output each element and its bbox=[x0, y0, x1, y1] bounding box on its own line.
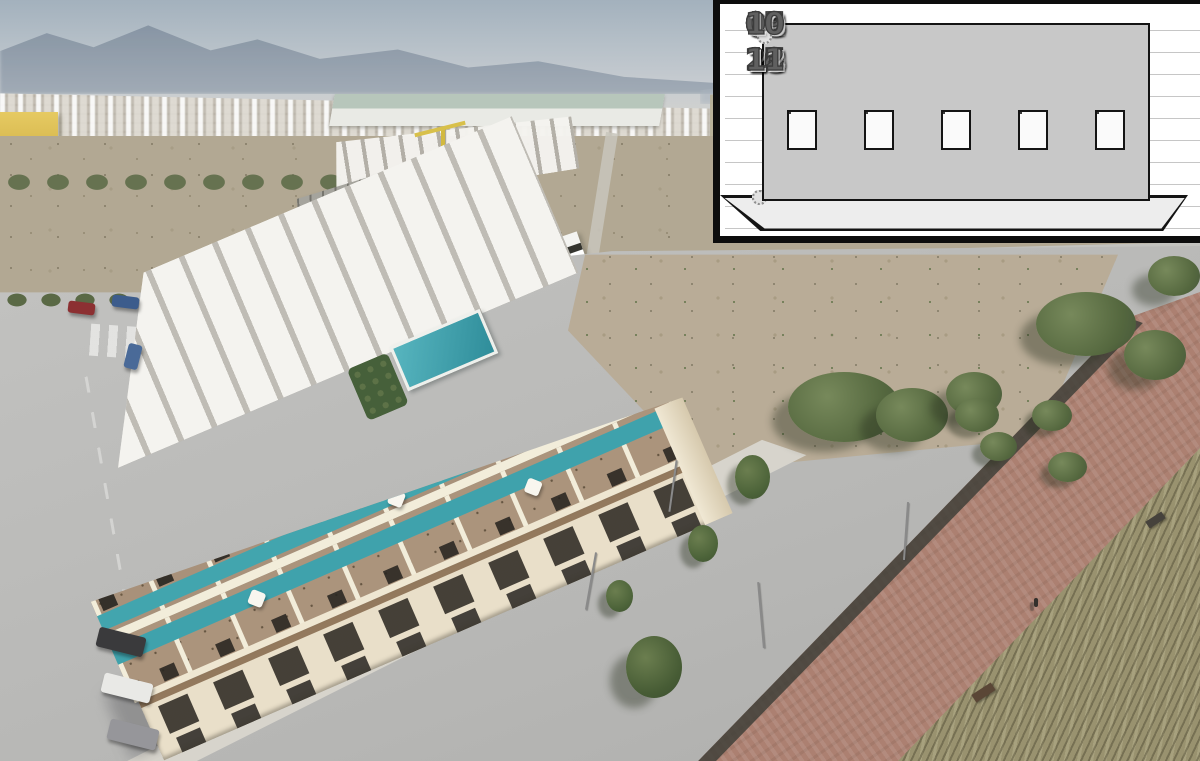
plan-building: 2001190218031704160515061407130812091110 bbox=[762, 23, 1150, 201]
stairwell-icon bbox=[941, 110, 971, 150]
warehouse-green-roof bbox=[329, 94, 665, 126]
tree-line bbox=[0, 158, 345, 202]
tree bbox=[1032, 400, 1072, 431]
tree bbox=[606, 580, 633, 612]
stairwell-icon bbox=[864, 110, 894, 150]
aerial-render-scene: 2001190218031704160515061407130812091110 bbox=[0, 0, 1200, 761]
plan-band-cells bbox=[759, 197, 1147, 229]
tree bbox=[688, 525, 718, 562]
tree bbox=[876, 388, 948, 442]
stairwell-icon bbox=[1018, 110, 1048, 150]
pedestrian bbox=[1034, 598, 1038, 607]
site-plan-overlay: 2001190218031704160515061407130812091110 bbox=[713, 0, 1200, 243]
tree bbox=[1124, 330, 1186, 380]
stairwell-icon bbox=[1095, 110, 1125, 150]
unit-number: 11 bbox=[745, 46, 783, 76]
tree bbox=[1048, 452, 1087, 482]
unit-number: 10 bbox=[745, 10, 783, 40]
tree bbox=[1148, 256, 1200, 296]
tree bbox=[955, 398, 999, 432]
tree bbox=[735, 455, 770, 499]
tree bbox=[626, 636, 682, 698]
tree bbox=[1036, 292, 1136, 356]
tree bbox=[980, 432, 1017, 461]
stairwell-icon bbox=[787, 110, 817, 150]
